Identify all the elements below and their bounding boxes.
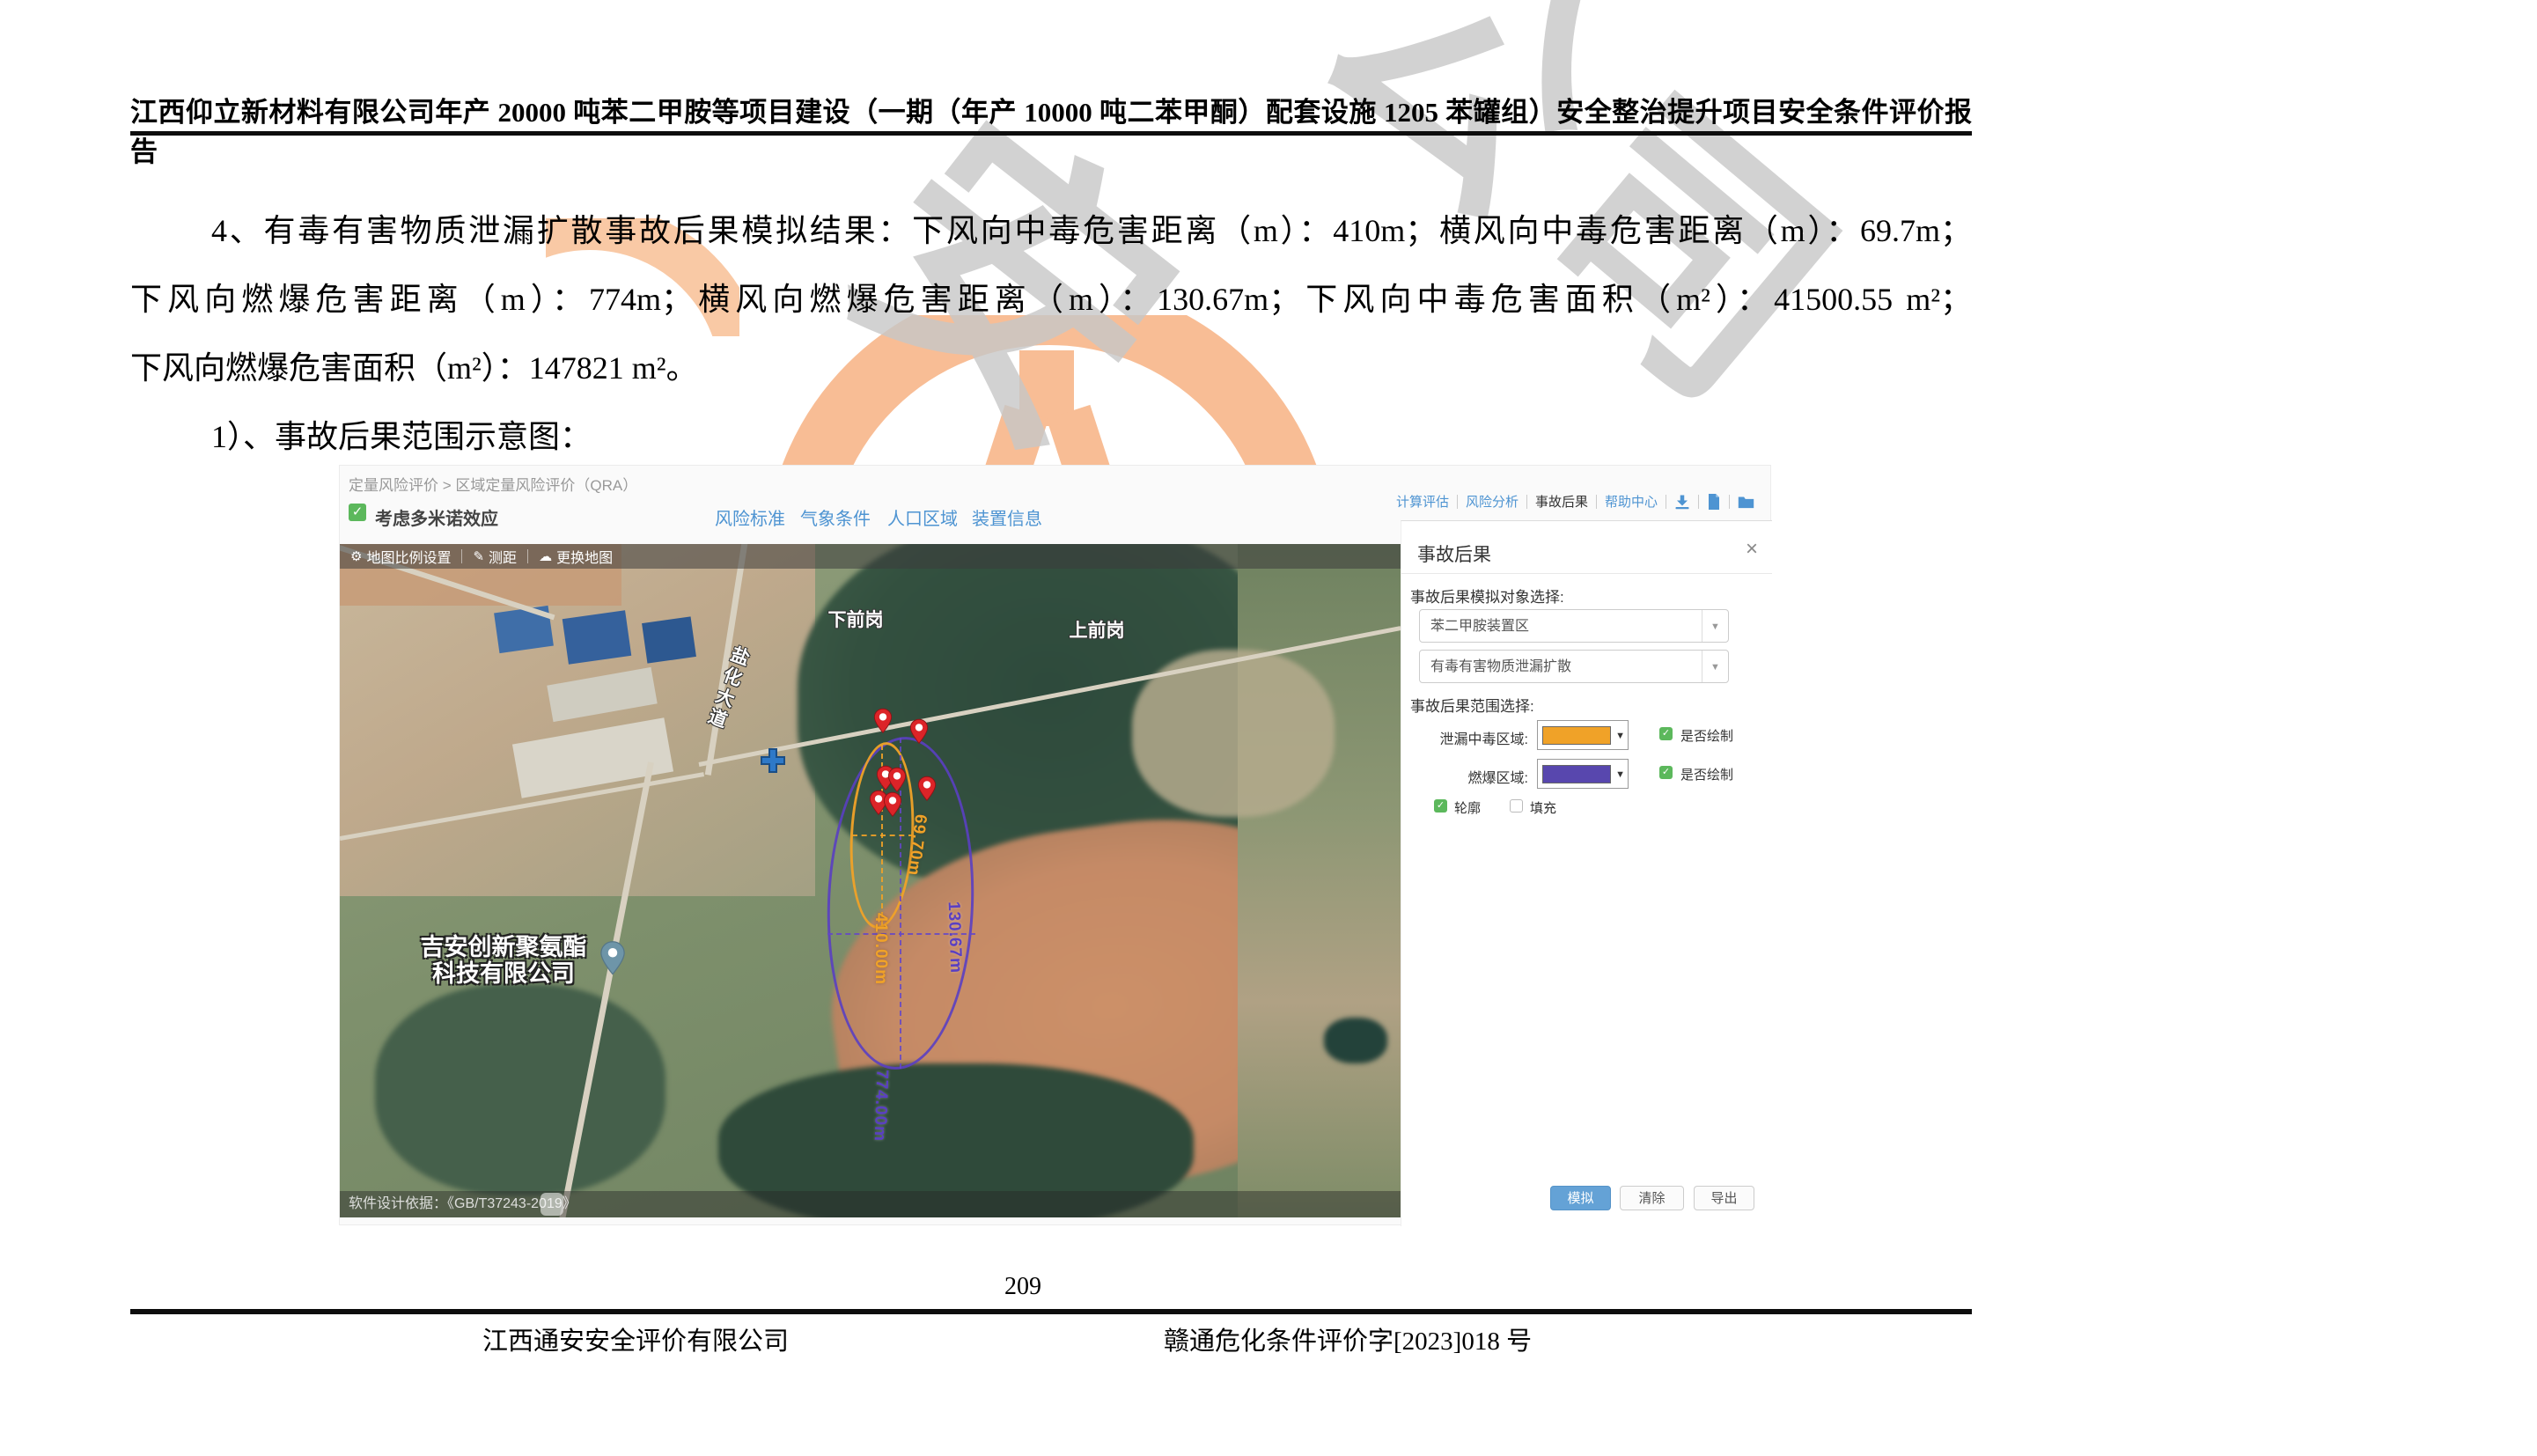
chevron-down-icon: ▼ — [1615, 721, 1625, 751]
nav-divider — [1457, 495, 1458, 509]
body-line-2: 下风向燃爆危害距离（m）：774m；横风向燃爆危害距离（m）：130.67m；下… — [130, 274, 1972, 320]
map-pin-icon[interactable] — [909, 718, 929, 745]
document-icon[interactable] — [1707, 494, 1721, 510]
body-line-4: 1）、事故后果范围示意图： — [211, 411, 2053, 457]
toxic-draw-checkbox[interactable]: ✓ — [1659, 727, 1673, 740]
toolbar-divider — [461, 549, 462, 563]
measure-distance-button[interactable]: 测距 — [489, 546, 517, 567]
blast-length-label: 774.00m — [870, 1070, 892, 1143]
sim-object-label: 事故后果模拟对象选择: — [1410, 585, 1564, 607]
toxic-draw-label: 是否绘制 — [1680, 726, 1733, 745]
map-pin-icon[interactable] — [917, 776, 937, 802]
breadcrumb: 定量风险评价 > 区域定量风险评价（QRA） — [349, 473, 637, 495]
company-label-line2: 科技有限公司 — [371, 960, 636, 987]
body-line-1: 4、有毒有害物质泄漏扩散事故后果模拟结果：下风向中毒危害距离（m）：410m；横… — [211, 205, 1972, 251]
nav-accident-consequence[interactable]: 事故后果 — [1535, 492, 1588, 511]
chevron-down-icon: ▼ — [1702, 651, 1728, 682]
nav-risk-analysis[interactable]: 风险分析 — [1466, 492, 1519, 511]
pencil-icon: ✎ — [473, 548, 484, 564]
domino-checkbox[interactable]: ✓ — [349, 504, 366, 521]
top-nav: 计算评估 风险分析 事故后果 帮助中心 — [1396, 492, 1754, 511]
change-map-button[interactable]: 更换地图 — [556, 546, 613, 567]
folder-icon[interactable] — [1738, 495, 1754, 509]
download-icon[interactable] — [1674, 494, 1690, 510]
map-scale-settings-button[interactable]: 地图比例设置 — [366, 546, 451, 567]
toolbar-divider — [527, 549, 528, 563]
link-risk-standard[interactable]: 风险标准 — [715, 504, 785, 530]
map-building-blue — [642, 616, 696, 663]
clear-button[interactable]: 清除 — [1620, 1186, 1684, 1210]
nav-divider — [1698, 495, 1699, 509]
blast-color-swatch — [1542, 765, 1611, 783]
fill-checkbox[interactable]: ✓ — [1510, 799, 1523, 813]
nav-divider — [1729, 495, 1730, 509]
toxic-color-select[interactable]: ▼ — [1537, 720, 1629, 750]
gear-icon: ⚙ — [350, 548, 362, 564]
device-select[interactable]: 苯二甲胺装置区 ▼ — [1419, 609, 1729, 643]
map-pin-icon[interactable] — [887, 767, 907, 793]
village-label-right: 上前岗 — [1053, 616, 1141, 643]
satellite-map[interactable]: ⚙ 地图比例设置 ✎ 测距 ☁ 更换地图 下前岗 上前岗 盐化大道 吉安创新聚氨… — [340, 544, 1401, 1217]
map-swap-icon: ☁ — [539, 548, 552, 564]
nav-divider — [1596, 495, 1597, 509]
chevron-down-icon: ▼ — [1615, 760, 1625, 790]
village-label-top: 下前岗 — [812, 606, 900, 632]
panel-title: 事故后果 — [1417, 540, 1491, 567]
map-building-blue — [563, 610, 632, 665]
outline-label: 轮廓 — [1454, 798, 1481, 817]
outline-checkbox[interactable]: ✓ — [1434, 799, 1447, 813]
blast-color-select[interactable]: ▼ — [1537, 759, 1629, 789]
qra-app-screenshot: 定量风险评价 > 区域定量风险评价（QRA） ✓ 考虑多米诺效应 风险标准 气象… — [339, 465, 1771, 1225]
device-select-value: 苯二甲胺装置区 — [1430, 610, 1529, 643]
company-pin-icon — [599, 938, 626, 979]
map-logo-icon — [540, 1193, 563, 1216]
map-terrain-forest-left — [375, 984, 666, 1195]
panel-header: 事故后果 × — [1401, 521, 1772, 574]
blast-draw-label: 是否绘制 — [1680, 765, 1733, 783]
map-attribution-bar: 软件设计依据：《GB/T37243-2019》 — [340, 1191, 1401, 1217]
close-icon[interactable]: × — [1746, 537, 1758, 562]
accident-consequence-panel: 事故后果 × 事故后果模拟对象选择: 苯二甲胺装置区 ▼ 有毒有害物质泄漏扩散 … — [1401, 520, 1772, 1226]
toxic-axis-horizontal — [852, 835, 914, 836]
range-label: 事故后果范围选择: — [1410, 694, 1534, 716]
footer-company: 江西通安安全评价有限公司 — [482, 1320, 789, 1357]
toxic-length-label: 410.00m — [871, 913, 890, 985]
nav-help-center[interactable]: 帮助中心 — [1605, 492, 1658, 511]
body-line-3: 下风向燃爆危害面积（m²）：147821 m²。 — [130, 342, 1972, 388]
footer-rule — [130, 1309, 1972, 1314]
report-header-title: 江西仰立新材料有限公司年产 20000 吨苯二甲胺等项目建设（一期（年产 100… — [130, 90, 1972, 169]
map-pin-icon[interactable] — [873, 708, 893, 734]
nav-divider — [1526, 495, 1527, 509]
plus-marker-icon — [758, 746, 788, 776]
document-page: 安 公司 江西仰立新材料有限公司年产 20000 吨苯二甲胺等项目建设（一期（年… — [0, 0, 2537, 1456]
nav-divider — [1666, 495, 1666, 509]
page-number: 209 — [935, 1273, 1111, 1301]
blast-row-label: 燃爆区域: — [1431, 766, 1528, 787]
options-row: ✓ 考虑多米诺效应 风险标准 气象条件 人口区域 装置信息 — [340, 503, 1396, 526]
domino-checkbox-label: 考虑多米诺效应 — [375, 504, 498, 530]
footer-license-number: 赣通危化条件评价字[2023]018 号 — [1164, 1320, 1532, 1357]
map-pond — [1324, 1018, 1387, 1063]
blast-width-label: 130.67m — [944, 901, 966, 974]
scenario-select-value: 有毒有害物质泄漏扩散 — [1430, 651, 1571, 684]
chevron-down-icon: ▼ — [1702, 610, 1728, 642]
scenario-select[interactable]: 有毒有害物质泄漏扩散 ▼ — [1419, 650, 1729, 683]
map-pin-icon[interactable] — [883, 791, 902, 818]
fill-label: 填充 — [1530, 798, 1556, 817]
simulate-button[interactable]: 模拟 — [1550, 1186, 1611, 1210]
toxic-row-label: 泄漏中毒区域: — [1431, 727, 1528, 748]
link-device-info[interactable]: 装置信息 — [972, 504, 1042, 530]
nav-calc-eval[interactable]: 计算评估 — [1396, 492, 1449, 511]
header-rule — [130, 131, 1972, 136]
company-label-line1: 吉安创新聚氨酯 — [371, 934, 636, 960]
link-weather[interactable]: 气象条件 — [800, 504, 871, 530]
toxic-color-swatch — [1542, 726, 1611, 745]
blast-draw-checkbox[interactable]: ✓ — [1659, 766, 1673, 779]
company-label: 吉安创新聚氨酯 科技有限公司 — [371, 934, 636, 987]
map-toolbar: ⚙ 地图比例设置 ✎ 测距 ☁ 更换地图 — [340, 544, 1401, 569]
export-button[interactable]: 导出 — [1694, 1186, 1754, 1210]
link-population[interactable]: 人口区域 — [887, 504, 958, 530]
